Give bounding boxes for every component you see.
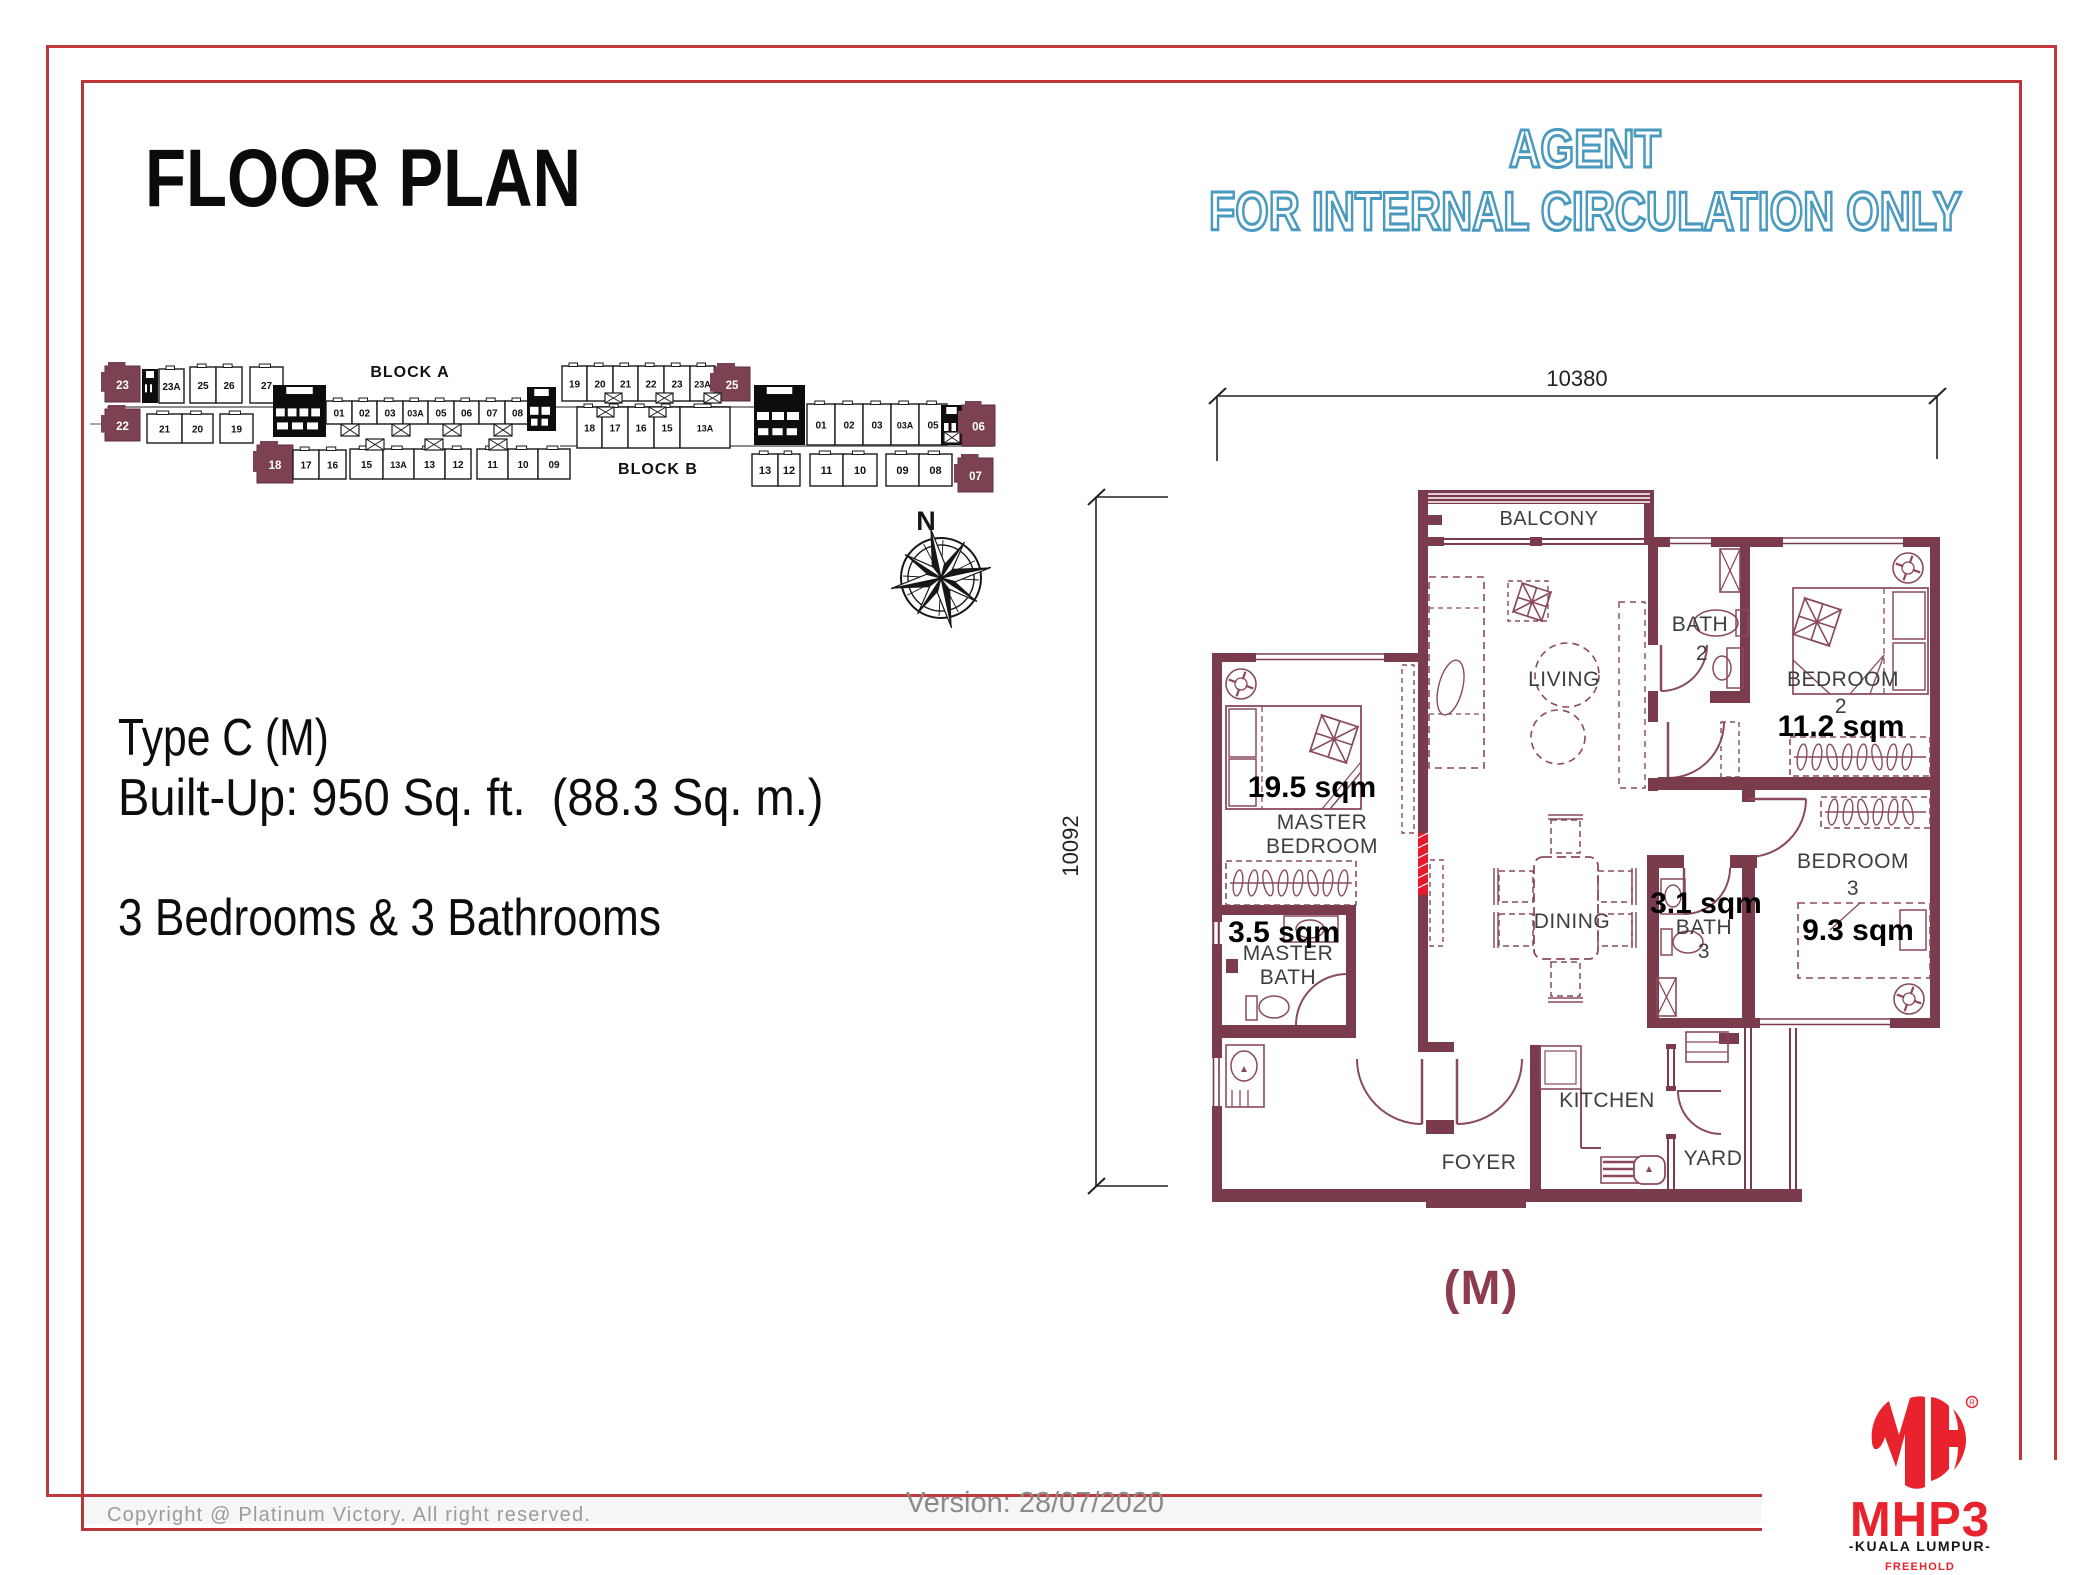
svg-text:BLOCK B: BLOCK B (618, 461, 698, 478)
svg-text:11.2 sqm: 11.2 sqm (1778, 710, 1905, 743)
svg-text:15: 15 (361, 460, 373, 471)
svg-text:27: 27 (261, 381, 273, 392)
svg-text:20: 20 (594, 380, 606, 391)
svg-text:18: 18 (269, 460, 282, 472)
svg-text:R: R (1969, 1399, 1975, 1408)
svg-text:N: N (916, 506, 936, 536)
svg-text:LIVING: LIVING (1528, 668, 1600, 691)
svg-text:-KUALA LUMPUR-: -KUALA LUMPUR- (1849, 1538, 1992, 1554)
svg-text:25: 25 (726, 380, 739, 392)
svg-text:3.5 sqm: 3.5 sqm (1228, 916, 1340, 949)
svg-text:02: 02 (843, 421, 855, 432)
svg-text:25: 25 (197, 381, 209, 392)
svg-text:18: 18 (584, 424, 596, 435)
svg-text:13: 13 (759, 465, 771, 477)
svg-text:KITCHEN: KITCHEN (1559, 1089, 1655, 1112)
svg-text:BALCONY: BALCONY (1499, 508, 1598, 530)
svg-text:YARD: YARD (1684, 1147, 1743, 1170)
svg-text:MASTER: MASTER (1277, 811, 1368, 834)
svg-text:06: 06 (461, 409, 473, 420)
svg-text:08: 08 (512, 409, 524, 420)
svg-text:19: 19 (231, 425, 243, 436)
svg-text:(M): (M) (1444, 1262, 1519, 1315)
svg-text:2: 2 (1696, 642, 1708, 665)
svg-text:3: 3 (1847, 877, 1859, 900)
svg-text:16: 16 (635, 424, 647, 435)
svg-text:12: 12 (783, 465, 795, 477)
svg-text:23A: 23A (162, 382, 180, 393)
svg-text:BLOCK A: BLOCK A (370, 364, 449, 381)
svg-text:13: 13 (424, 460, 436, 471)
svg-text:21: 21 (620, 380, 632, 391)
svg-text:13A: 13A (390, 460, 407, 470)
svg-text:10: 10 (854, 465, 866, 477)
svg-text:17: 17 (300, 461, 312, 472)
svg-text:17: 17 (609, 424, 621, 435)
svg-text:11: 11 (821, 465, 833, 477)
svg-text:15: 15 (661, 424, 673, 435)
svg-text:BEDROOM: BEDROOM (1787, 668, 1899, 691)
svg-text:03: 03 (384, 409, 396, 420)
svg-text:10380: 10380 (1546, 366, 1607, 391)
svg-text:01: 01 (333, 409, 345, 420)
svg-text:23A: 23A (694, 380, 711, 390)
svg-text:20: 20 (192, 425, 204, 436)
svg-text:07: 07 (486, 409, 498, 420)
svg-text:13A: 13A (697, 424, 714, 434)
svg-text:02: 02 (359, 409, 371, 420)
svg-text:3.1 sqm: 3.1 sqm (1650, 887, 1762, 920)
svg-text:22: 22 (116, 421, 129, 433)
svg-text:21: 21 (159, 425, 171, 436)
svg-text:06: 06 (972, 422, 985, 434)
svg-text:22: 22 (645, 380, 657, 391)
svg-text:07: 07 (969, 471, 982, 483)
svg-text:3: 3 (1698, 940, 1710, 963)
svg-text:9.3 sqm: 9.3 sqm (1802, 914, 1914, 947)
svg-text:03A: 03A (897, 421, 914, 431)
svg-text:03A: 03A (407, 409, 424, 419)
svg-text:10: 10 (517, 460, 529, 471)
svg-text:08: 08 (929, 465, 941, 477)
svg-text:12: 12 (452, 460, 464, 471)
svg-text:03: 03 (871, 421, 883, 432)
svg-text:05: 05 (927, 421, 939, 432)
svg-text:09: 09 (548, 460, 560, 471)
svg-text:10092: 10092 (1058, 815, 1083, 876)
svg-text:FREEHOLD: FREEHOLD (1885, 1561, 1955, 1573)
svg-text:BEDROOM: BEDROOM (1797, 850, 1909, 873)
svg-text:BATH: BATH (1672, 613, 1728, 636)
svg-text:BEDROOM: BEDROOM (1266, 835, 1378, 858)
svg-text:09: 09 (896, 465, 908, 477)
svg-text:19.5 sqm: 19.5 sqm (1248, 771, 1376, 804)
svg-text:23: 23 (116, 380, 129, 392)
svg-text:01: 01 (815, 421, 827, 432)
svg-text:19: 19 (569, 380, 581, 391)
svg-text:23: 23 (671, 380, 683, 391)
svg-text:05: 05 (435, 409, 447, 420)
svg-text:BATH: BATH (1260, 966, 1316, 989)
svg-text:26: 26 (223, 381, 235, 392)
svg-text:16: 16 (327, 461, 339, 472)
svg-text:11: 11 (487, 460, 498, 471)
svg-text:FOYER: FOYER (1442, 1151, 1517, 1174)
